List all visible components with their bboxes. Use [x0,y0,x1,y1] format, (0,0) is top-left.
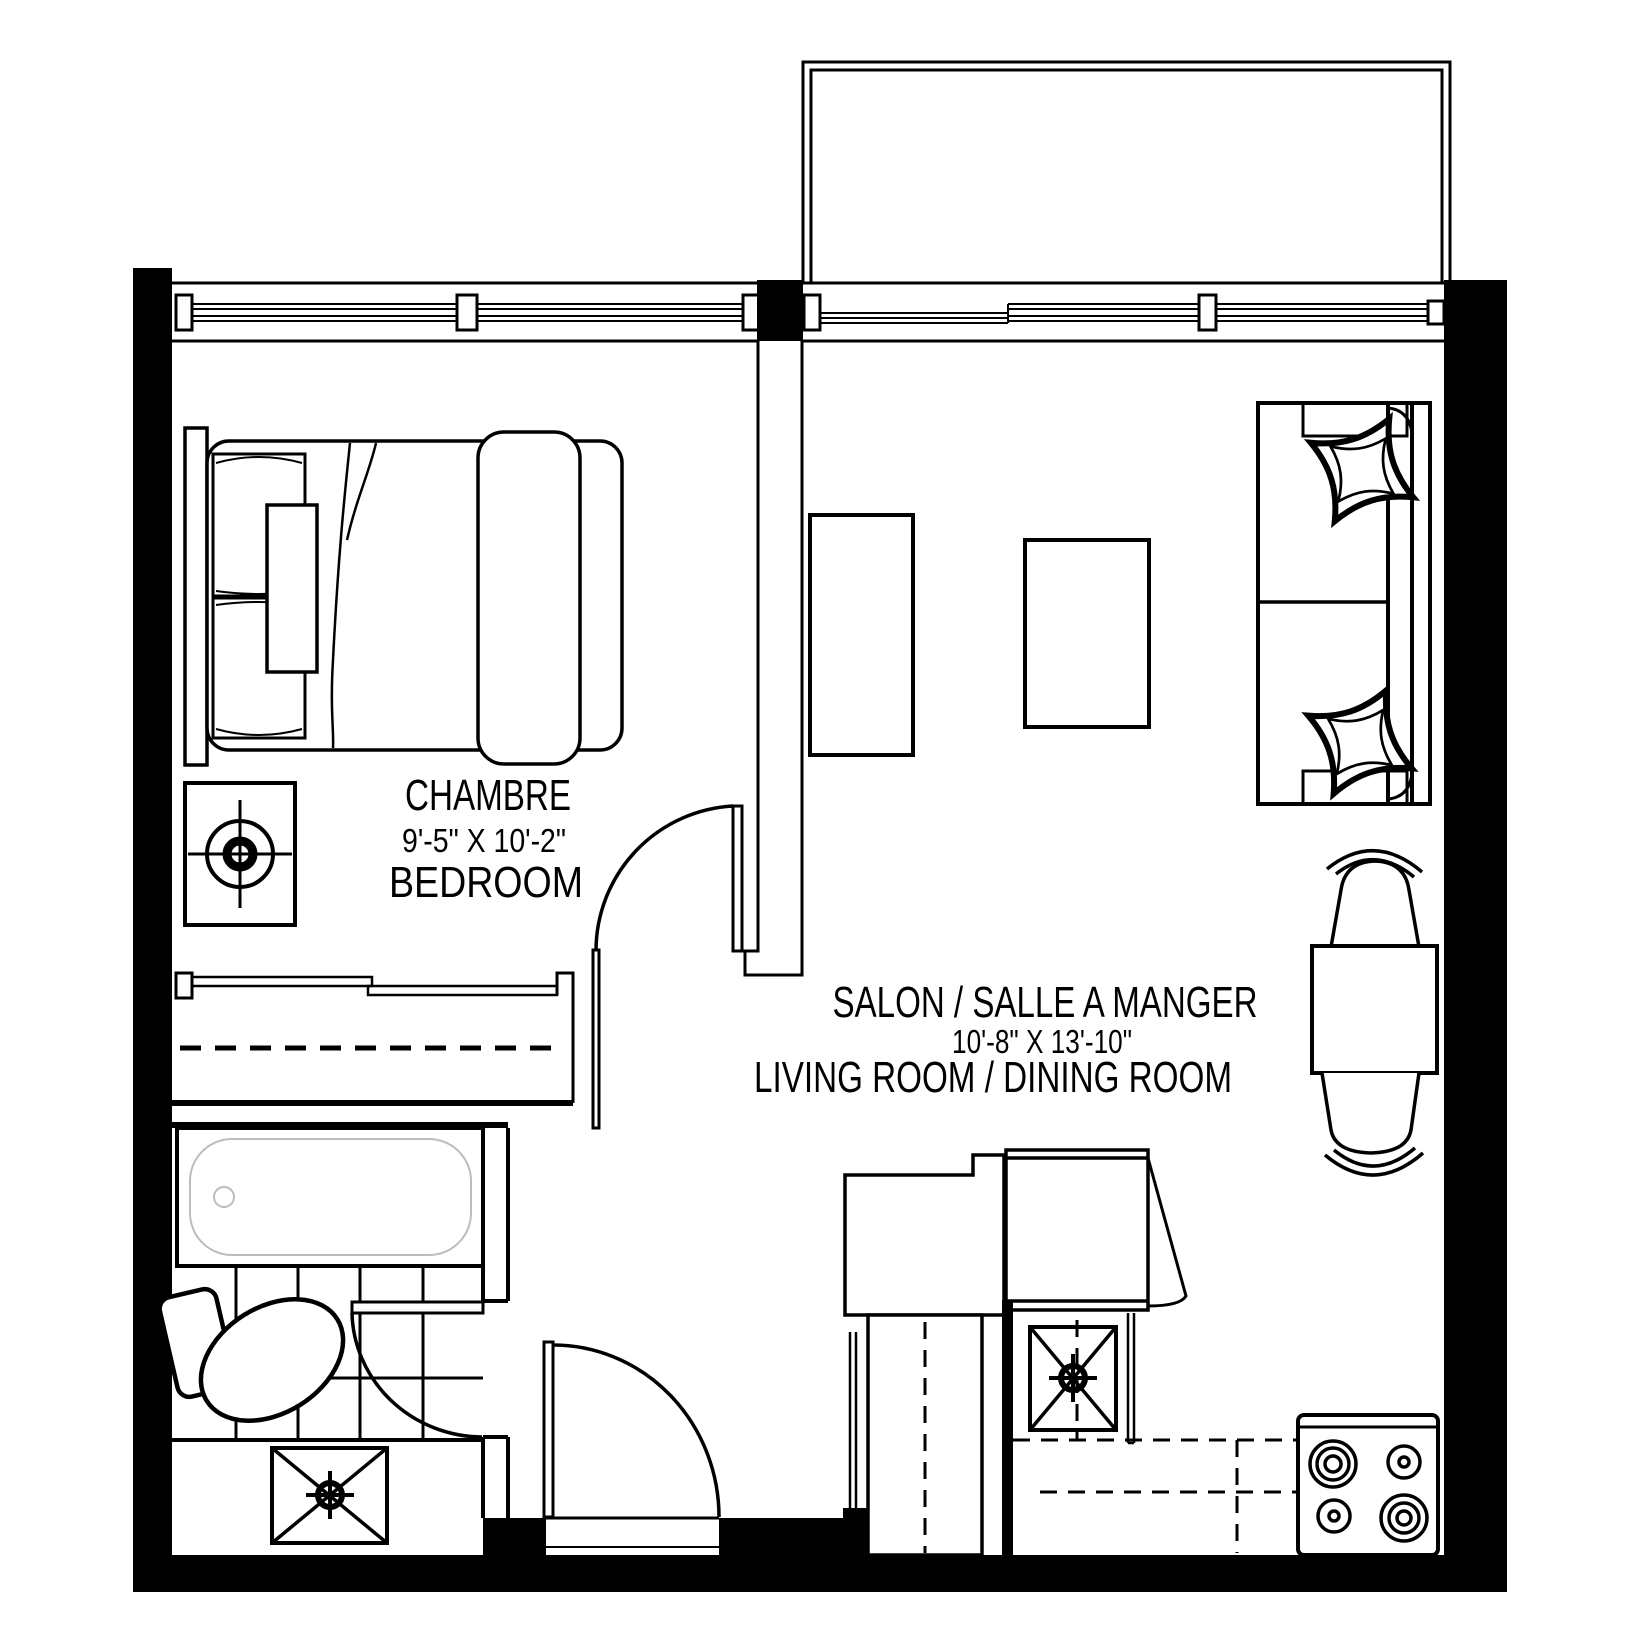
counter-edge [1128,1313,1134,1443]
closet-door-panel-1 [192,977,372,986]
stove [1298,1415,1438,1555]
coffee-table [1025,540,1149,727]
dining-set [1312,851,1437,1175]
dining-chair-bottom [1322,1073,1419,1153]
entry-door [544,1342,719,1517]
window-wall [172,280,1447,345]
living-title: SALON / SALLE A MANGER [833,978,1258,1027]
bathroom-door-leaf [352,1302,483,1313]
balcony-door [820,304,1008,323]
bed [185,428,622,765]
bathroom-right-wall-upper [483,1128,508,1301]
bed-duvet-roll [478,432,580,764]
entry-door-leaf [544,1342,553,1517]
kitchen-wall-stub [1002,1300,1013,1555]
bedroom-dimensions: 9'-5" X 10'-2" [402,822,566,859]
bedroom-door-leaf [733,806,742,951]
bathroom [157,1125,508,1555]
living-subtitle: LIVING ROOM / DINING ROOM [754,1053,1232,1102]
bathtub [177,1128,483,1266]
partition-wall [745,341,802,975]
refrigerator [1006,1150,1186,1310]
bathroom-door-swing-arc [352,1313,482,1437]
wall-junction-block [757,280,803,345]
toilet [157,1274,365,1446]
bedroom-door [596,806,742,951]
closet-wall-step [557,973,573,998]
dining-table [1312,946,1437,1073]
bathroom-wall-stub [483,1518,508,1555]
sofa [1258,392,1440,820]
tv-console [810,515,913,755]
bottom-wall [133,1555,1507,1592]
entry-door-swing-arc [553,1345,719,1517]
floor-plan-drawing: CHAMBRE 9'-5" X 10'-2" BEDROOM SALON / S… [0,0,1649,1649]
closet-track-cap [176,973,192,998]
floor-plan: CHAMBRE 9'-5" X 10'-2" BEDROOM SALON / S… [0,0,1649,1649]
entry-side-wall [843,1332,870,1555]
hall-wall [593,950,599,1128]
window-mullions [176,295,1444,330]
bedroom-door-swing-arc [596,806,733,950]
peninsula-counter [845,1155,1004,1315]
kitchen-sink [1030,1327,1116,1430]
bedroom-title: CHAMBRE [405,771,571,820]
bedroom-subtitle: BEDROOM [389,858,583,907]
room-labels: CHAMBRE 9'-5" X 10'-2" BEDROOM SALON / S… [389,771,1258,1102]
left-wall [133,268,172,1592]
bed-folded-blanket [267,505,317,672]
dishwasher-cabinet [868,1315,982,1555]
bathroom-right-wall-lower [483,1437,508,1518]
dining-chair-top [1331,861,1419,947]
fixture-target-symbol [185,783,295,925]
bathroom-door [352,1302,483,1437]
closet [172,950,599,1128]
kitchen [843,1150,1438,1555]
closet-door-panel-2 [368,986,557,995]
balcony [803,62,1450,283]
vanity-sink [272,1448,387,1543]
bed-headboard [185,428,207,765]
living-window [1008,304,1428,321]
right-wall [1444,280,1507,1592]
refrigerator-door-swing [1148,1158,1186,1306]
